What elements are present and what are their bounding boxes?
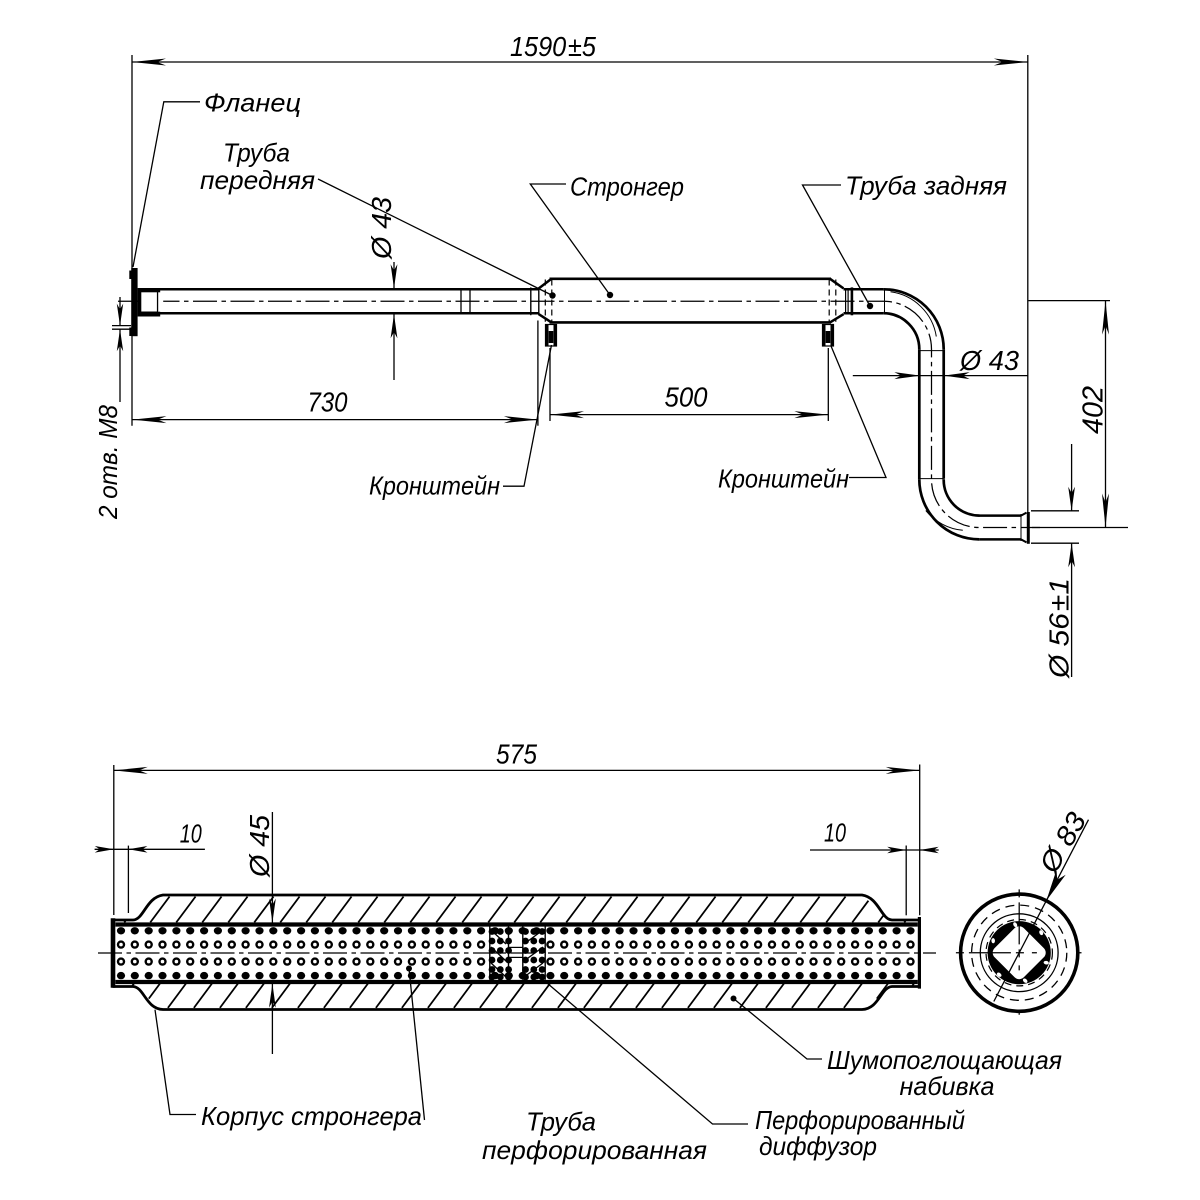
svg-text:Ø 43: Ø 43 [366,197,397,260]
svg-text:Труба задняя: Труба задняя [845,171,1007,201]
svg-text:Ø 56±1: Ø 56±1 [1044,578,1075,679]
svg-text:Труба: Труба [223,138,290,168]
svg-text:500: 500 [665,382,708,413]
svg-text:1590±5: 1590±5 [510,31,596,62]
svg-text:402: 402 [1078,386,1110,434]
svg-text:10: 10 [180,819,202,849]
svg-text:передняя: передняя [200,165,315,195]
svg-text:перфорированная: перфорированная [482,1135,707,1165]
svg-text:730: 730 [308,387,348,418]
svg-text:Корпус стронгера: Корпус стронгера [201,1101,422,1131]
svg-text:2 отв. М8: 2 отв. М8 [93,405,123,520]
svg-text:Стронгер: Стронгер [570,172,684,202]
svg-text:набивка: набивка [900,1071,995,1101]
svg-text:Труба: Труба [526,1107,596,1137]
svg-text:Ø 43: Ø 43 [959,345,1019,376]
svg-text:Ø 45: Ø 45 [244,815,275,878]
svg-text:Кронштейн: Кронштейн [369,471,500,501]
svg-text:575: 575 [496,739,537,770]
svg-text:Фланец: Фланец [204,88,301,118]
svg-text:Кронштейн: Кронштейн [718,464,849,494]
svg-text:диффузор: диффузор [759,1131,877,1161]
svg-text:10: 10 [824,818,846,848]
